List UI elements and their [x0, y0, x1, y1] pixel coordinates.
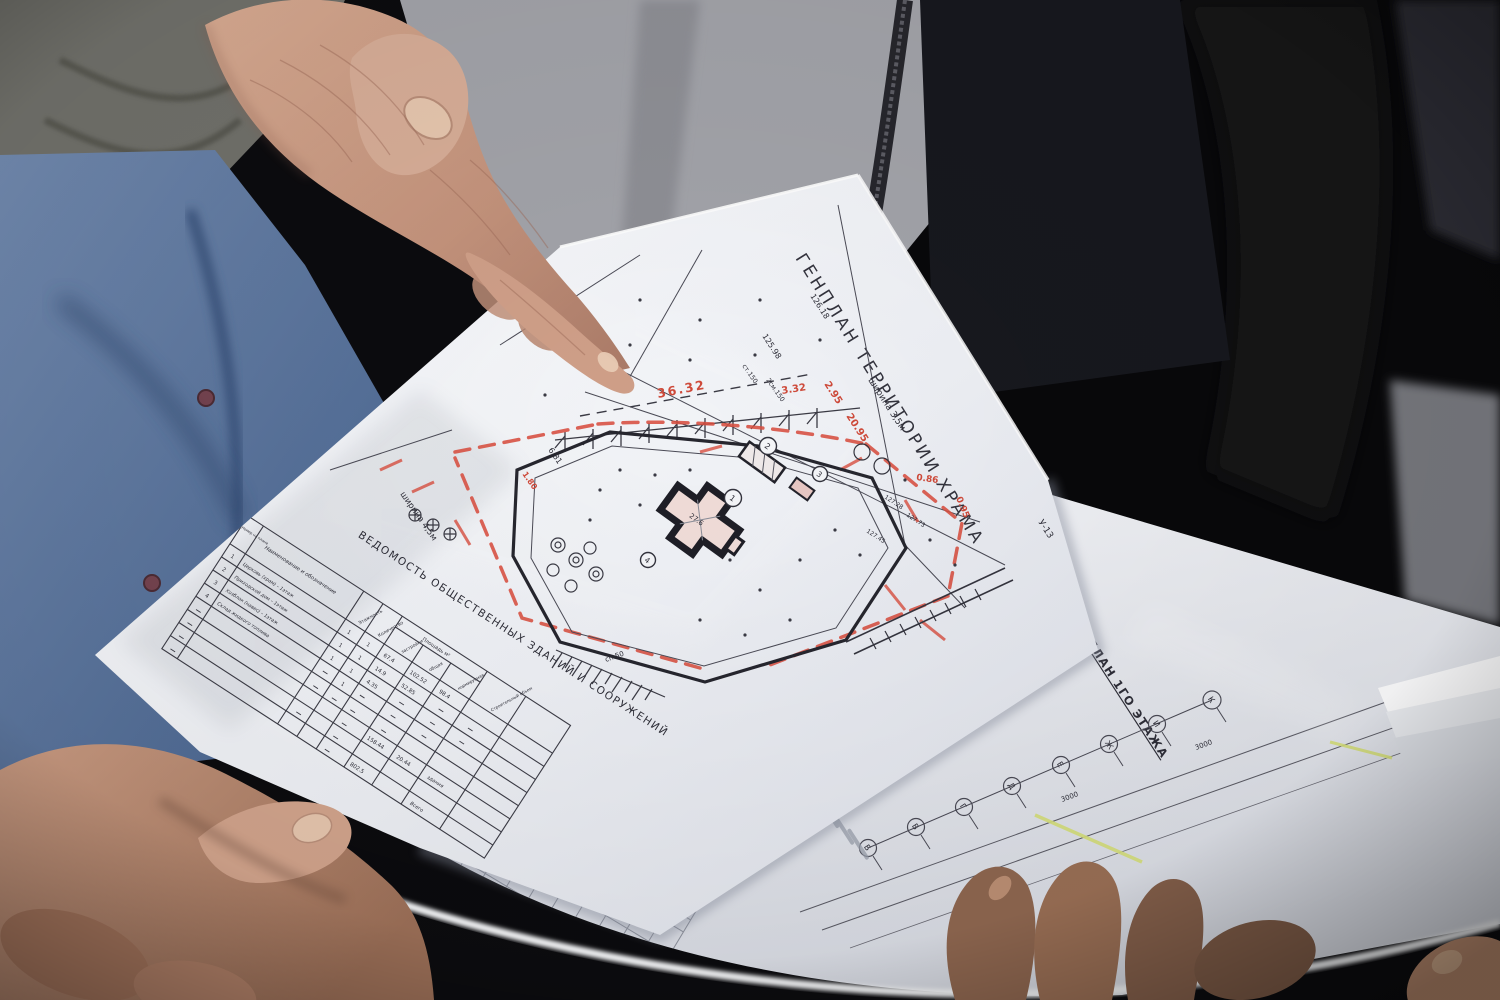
photo-canvas: ПЛАН 1ГО ЭТАЖА К И Ж Е Д Г В Б 3000 3000	[0, 0, 1500, 1000]
photo-plans-in-hands: ПЛАН 1ГО ЭТАЖА К И Ж Е Д Г В Б 3000 3000	[0, 0, 1500, 1000]
vignette	[0, 0, 1500, 1000]
